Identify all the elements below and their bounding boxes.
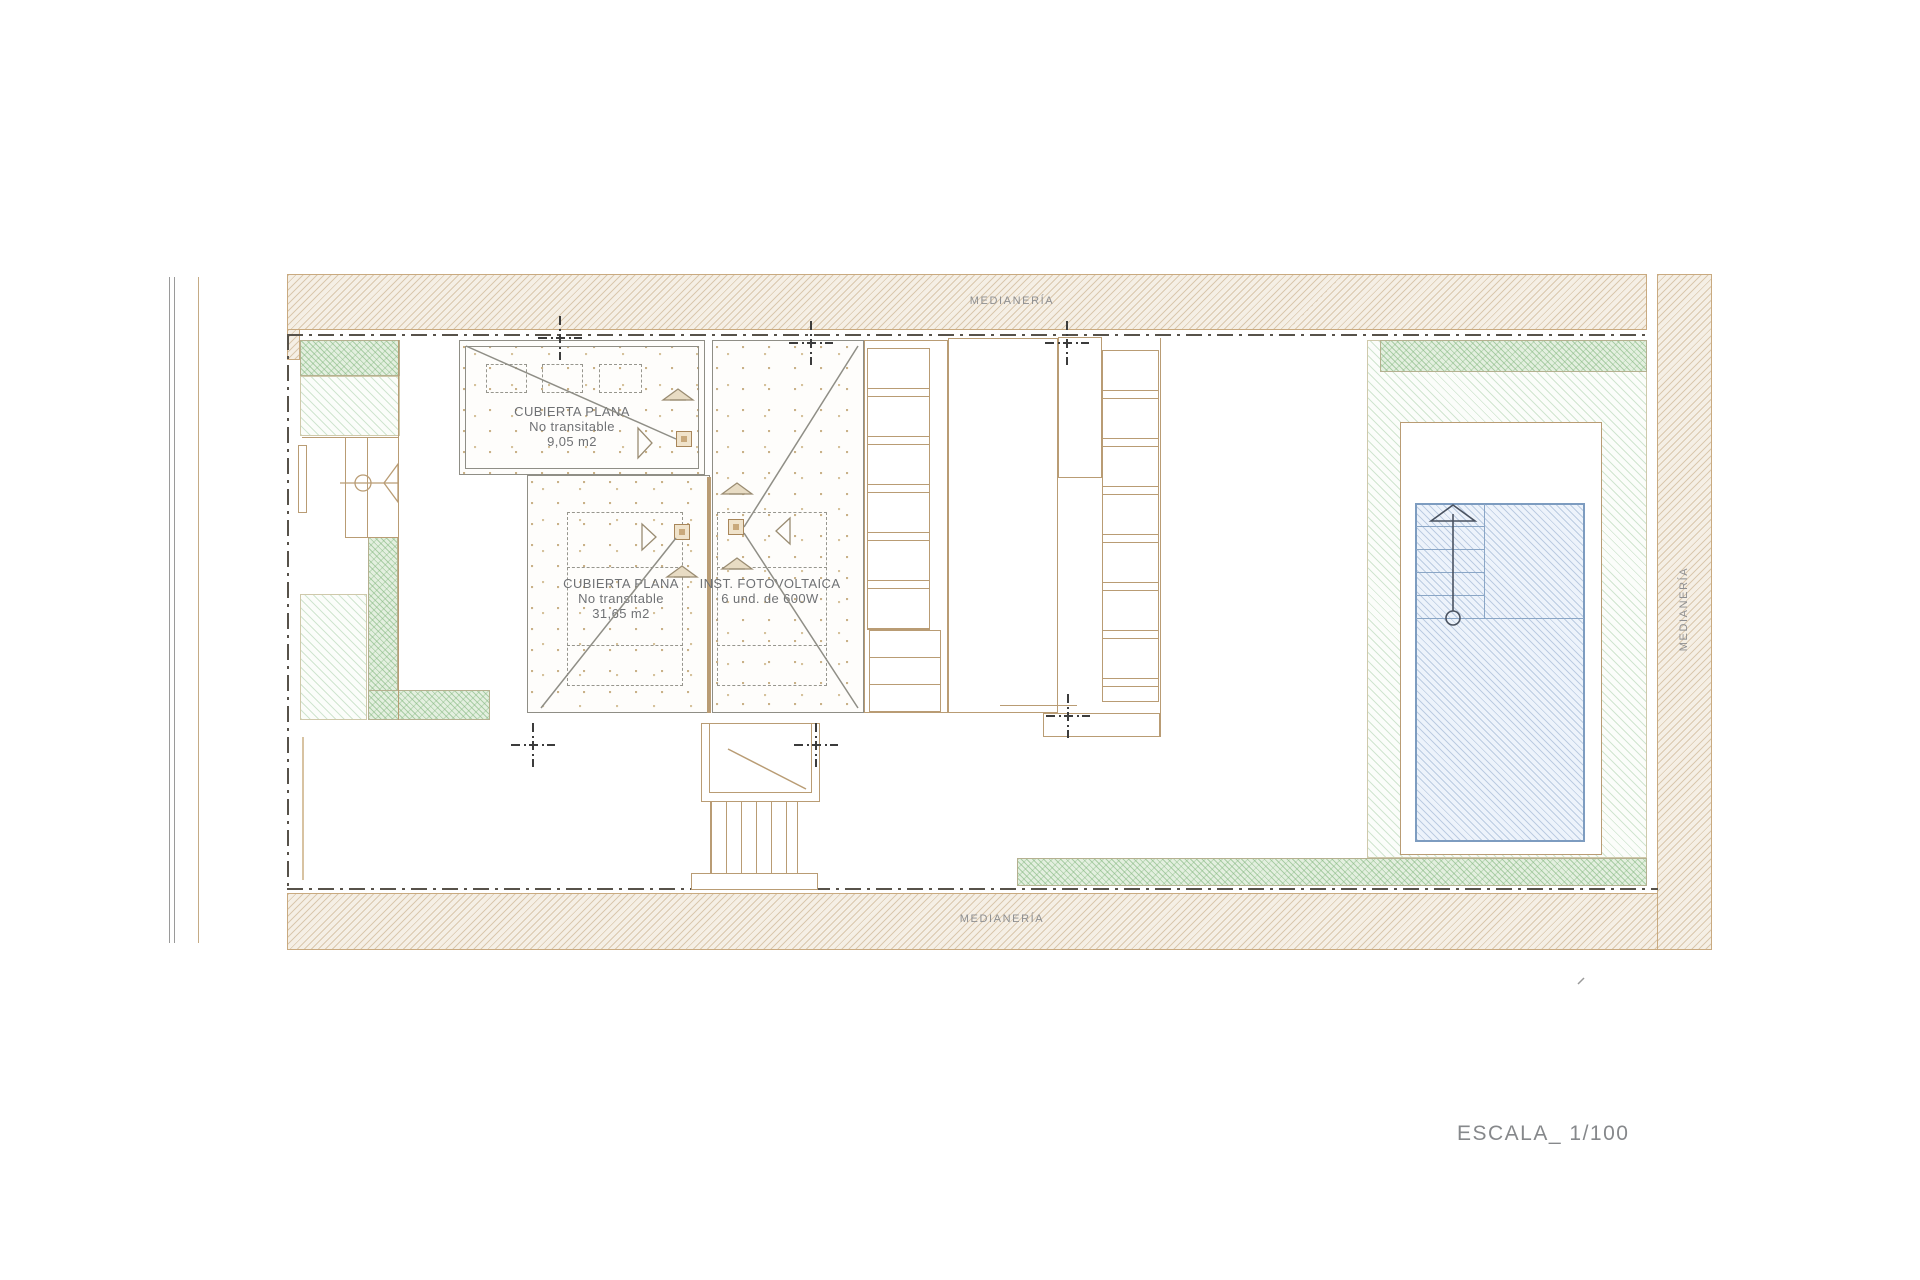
survey-cross-icon [538,316,582,360]
panel-zone-line [717,645,827,646]
panel-zone-line [567,645,683,646]
garden-patch-light-upper [300,376,400,436]
panel-zone-line [567,567,683,568]
corridor-top-line [302,437,398,438]
survey-cross-icon [794,723,838,767]
survey-cross-icon [511,723,555,767]
reference-line-left-1 [169,277,170,943]
stray-mark [1578,978,1584,984]
plot-boundary-bottom [287,888,1658,890]
roof-small-area: 9,05 m2 [492,434,652,449]
pergola-louvers-b [1102,350,1159,702]
medianeria-label-top: MEDIANERÍA [942,295,1082,307]
pool-steps [1416,504,1485,618]
building-east-wall [1160,338,1161,737]
solar-label: INST. FOTOVOLTAICA 6 und. de 600W [690,576,850,606]
corridor-wall-1 [345,437,346,537]
roof-large-area: 31,65 m2 [541,606,701,621]
entry-pillar [298,445,307,513]
corridor-wall-3 [398,340,399,720]
exterior-stairs [710,802,798,873]
roof-large-label: CUBIERTA PLANA No transitable 31,65 m2 [541,576,701,621]
medianeria-label-bottom: MEDIANERÍA [932,913,1072,925]
skylight-box-2 [542,364,583,393]
roof-large-title: CUBIERTA PLANA [541,576,701,591]
garden-strip-l-horizontal [368,690,490,720]
scale-label: ESCALA_ 1/100 [1457,1122,1629,1146]
garden-strip-right-top [1380,340,1647,372]
solar-title: INST. FOTOVOLTAICA [690,576,850,591]
building-bay-b [948,338,1058,713]
garden-patch-light-lower [300,594,367,720]
survey-cross-icon [789,321,833,365]
roof-drain-icon [676,431,692,447]
door-icon [340,464,398,502]
skylight-box-3 [599,364,642,393]
reference-line-left-2 [174,277,175,943]
reference-line-left-3 [198,277,199,943]
pool-shallow-divider [1416,618,1584,619]
plot-boundary-left [287,334,289,888]
roof-small-subtitle: No transitable [492,419,652,434]
solar-capacity: 6 und. de 600W [690,591,850,606]
side-passage-wall [302,737,304,880]
roof-small-label: CUBIERTA PLANA No transitable 9,05 m2 [492,404,652,449]
garden-patch-topleft [300,340,400,376]
garden-strip-bottom [1017,858,1647,886]
stair-box-a [869,630,941,713]
pergola-louvers-a [867,348,930,630]
survey-cross-icon [1046,694,1090,738]
corridor-bottom-line [345,537,398,538]
roof-drain-icon [728,519,744,535]
roof-drain-icon [674,524,690,540]
corridor-wall-2 [367,437,368,537]
stair-landing [691,873,818,890]
panel-zone-line [717,567,827,568]
medianeria-label-right: MEDIANERÍA [1678,544,1690,674]
survey-cross-icon [1045,321,1089,365]
plot-boundary-top [287,334,1650,336]
roof-plan-canvas: MEDIANERÍA MEDIANERÍA MEDIANERÍA CUBIERT… [0,0,1920,1280]
roof-small-title: CUBIERTA PLANA [492,404,652,419]
skylight-box-1 [486,364,527,393]
roof-large-subtitle: No transitable [541,591,701,606]
